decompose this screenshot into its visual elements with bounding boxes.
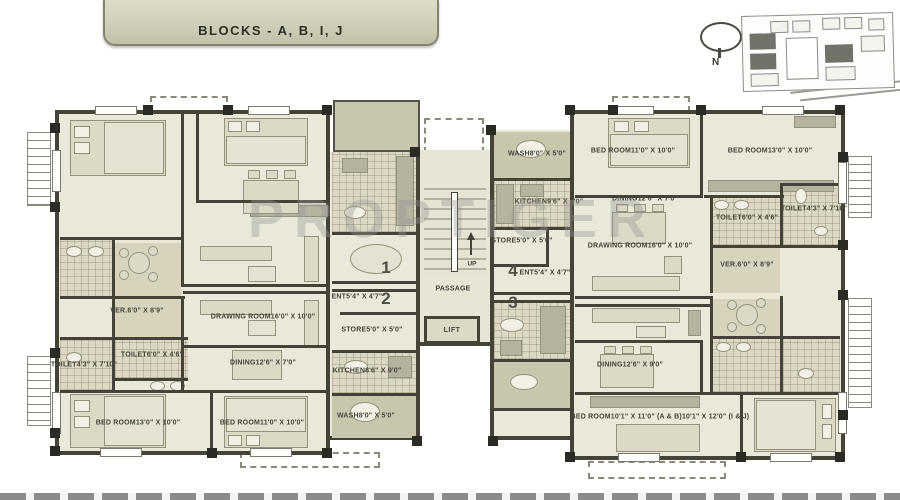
room-label-wash-left: WASH8'0" X 5'0": [337, 413, 395, 422]
site-block: [868, 18, 884, 30]
column: [322, 448, 332, 458]
furniture-pillow: [246, 121, 260, 132]
furniture-coffee-table: [248, 266, 276, 282]
wall: [416, 150, 420, 346]
wall: [332, 232, 420, 235]
room-label-dining-unit3: DINING12'6" X 9'0": [597, 362, 663, 371]
window: [100, 448, 142, 457]
furniture-pillow: [74, 142, 90, 154]
column: [412, 436, 422, 446]
toilet-fixture: [714, 200, 729, 210]
column: [696, 105, 706, 115]
room-label-toilet-left: TOILET6'0" X 4'6": [121, 352, 183, 361]
column: [838, 410, 848, 420]
room-label-toilet-right: TOILET6'0" X 4'6": [716, 215, 778, 224]
room-label-bedroom2-right: BED ROOM13'0" X 10'0": [728, 148, 813, 157]
column: [565, 452, 575, 462]
column: [835, 452, 845, 462]
stair-up-label: UP: [467, 261, 476, 268]
room-label-drawing-left: DRAWING ROOM16'0" X 10'0": [211, 314, 315, 323]
column: [838, 152, 848, 162]
wall: [700, 114, 703, 198]
column: [608, 105, 618, 115]
window: [95, 106, 137, 115]
furniture-pillow: [74, 416, 90, 428]
furniture-chair: [727, 322, 737, 332]
column: [50, 348, 60, 358]
wall: [183, 284, 330, 287]
room-label-wash-right: WASH8'0" X 5'0": [508, 151, 566, 160]
furniture-pillow: [614, 121, 629, 132]
wall: [183, 291, 330, 294]
site-plan-key: [741, 12, 895, 92]
wall: [783, 183, 840, 186]
toilet-fixture: [798, 368, 814, 379]
column: [50, 446, 60, 456]
furniture-chair: [284, 170, 296, 179]
site-open-court: [786, 37, 819, 80]
furniture-bed: [616, 424, 700, 452]
north-label: N: [712, 57, 719, 68]
column: [736, 452, 746, 462]
column: [410, 147, 420, 157]
wall: [704, 195, 784, 198]
kitchen-counter: [540, 306, 566, 354]
up-arrow-stem: [470, 240, 472, 255]
window: [618, 453, 660, 462]
toilet-floor: [783, 185, 840, 245]
floor-plan-page: BLOCKS - A, B, I, J N PROPTIGER: [0, 0, 900, 500]
kitchen-sink: [500, 318, 524, 332]
site-block: [751, 73, 779, 87]
unit-number-3: 3: [508, 293, 517, 313]
site-block: [825, 66, 855, 81]
furniture-dining-table: [243, 180, 299, 214]
wash-tub: [510, 374, 538, 390]
furniture-chair: [266, 170, 278, 179]
furniture-tv-unit: [688, 310, 701, 336]
room-label-bedroom1-right: BED ROOM11'0" X 10'0": [591, 148, 675, 157]
veranda-floor: [115, 299, 181, 339]
stair-stringer: [451, 192, 458, 272]
site-block: [822, 17, 840, 29]
wall: [546, 230, 549, 264]
unit-number-4: 4: [508, 261, 517, 281]
wall: [112, 240, 115, 298]
toilet-fixture: [66, 246, 82, 257]
site-block: [844, 17, 862, 29]
furniture-coffee-table: [248, 320, 276, 336]
wall: [780, 296, 783, 336]
site-block: [861, 35, 885, 52]
site-block: [770, 21, 788, 33]
furniture-rug: [350, 244, 402, 274]
wall: [494, 359, 570, 362]
furniture-chair: [727, 300, 737, 310]
room-label-drawing-right: DRAWING ROOM16'0" X 10'0": [588, 243, 692, 252]
wall: [575, 296, 713, 299]
column: [565, 105, 575, 115]
room-label-dining-left: DINING12'6" X 7'0": [230, 360, 296, 369]
wall: [60, 296, 185, 299]
room-label-ent-right: ENT5'4" X 4'7": [520, 270, 571, 279]
column: [838, 240, 848, 250]
veranda-floor: [712, 248, 780, 293]
column: [50, 428, 60, 438]
wall: [710, 339, 713, 392]
wall: [60, 390, 330, 393]
wall: [332, 350, 416, 353]
furniture-sofa: [304, 236, 319, 282]
room-label-veranda-left: VER.6'0" X 8'9": [110, 308, 163, 317]
furniture-pillow: [228, 435, 242, 446]
site-block: [792, 20, 810, 32]
column: [488, 436, 498, 446]
wall: [332, 289, 420, 292]
window: [770, 453, 812, 462]
wall: [494, 300, 570, 303]
wall: [332, 281, 420, 284]
toilet-fixture: [736, 342, 751, 352]
wall: [575, 340, 703, 343]
furniture-chair: [148, 272, 158, 282]
column: [143, 105, 153, 115]
furniture-pillow: [74, 400, 90, 412]
window: [762, 106, 804, 115]
furniture-chair: [634, 204, 646, 212]
furniture-chair: [148, 246, 158, 256]
furniture-pillow: [822, 424, 832, 439]
furniture-chair: [119, 270, 129, 280]
toilet-fixture: [795, 188, 807, 204]
room-label-bedroom1-left: BED ROOM13'0" X 10'0": [96, 420, 181, 429]
furniture-blanket: [226, 136, 306, 164]
column: [838, 290, 848, 300]
passage-label: PASSAGE: [435, 286, 470, 295]
furniture-pillow: [74, 126, 90, 138]
balcony-porch: [588, 461, 726, 479]
wall: [332, 393, 416, 396]
wall: [494, 292, 570, 295]
furniture-sofa: [304, 300, 319, 346]
furniture-sofa: [592, 276, 680, 291]
window: [248, 106, 290, 115]
wall: [196, 114, 199, 202]
window: [838, 162, 847, 204]
wall: [196, 200, 330, 203]
furniture-round-table: [736, 304, 758, 326]
room-label-dining-right: DINING12'6" X 7'0": [612, 196, 678, 205]
furniture-blanket: [104, 122, 164, 174]
furniture-chair: [622, 346, 634, 354]
wall: [700, 343, 703, 393]
wash-balcony: [333, 100, 420, 152]
wall: [494, 227, 570, 230]
window: [612, 106, 654, 115]
furniture-coffee-table: [636, 326, 666, 338]
wall: [494, 264, 549, 267]
room-label-kitchen-right: KITCHEN9'6" X 9'0": [515, 199, 584, 208]
wall: [710, 336, 840, 339]
furniture-armchair: [664, 256, 682, 274]
wall: [181, 296, 184, 390]
furniture-chair: [616, 204, 628, 212]
furniture-chair: [248, 170, 260, 179]
furniture-chair: [119, 248, 129, 258]
room-label-store-right: STORE5'0" X 5'0": [491, 238, 552, 247]
room-label-kitchen-left: KITCHEN8'6" X 9'0": [333, 368, 402, 377]
toilet-fixture: [716, 342, 731, 352]
column: [50, 123, 60, 133]
wall: [340, 312, 416, 315]
column: [50, 202, 60, 212]
furniture-dining-table: [612, 212, 666, 244]
kitchen-sink: [344, 206, 366, 219]
up-arrow-icon: [467, 232, 475, 240]
furniture-chair: [652, 204, 664, 212]
furniture-pillow: [634, 121, 649, 132]
kitchen-stove: [520, 184, 544, 197]
site-block-highlighted: [749, 33, 775, 50]
furniture-pillow: [822, 404, 832, 419]
unit-number-1: 1: [381, 258, 390, 278]
lift: LIFT: [424, 316, 480, 344]
lift-label: LIFT: [444, 327, 461, 334]
furniture-pillow: [246, 435, 260, 446]
unit-number-2: 2: [381, 289, 390, 309]
column: [835, 105, 845, 115]
toilet-fixture: [814, 226, 828, 236]
wall: [780, 339, 783, 392]
furniture-chair: [756, 324, 766, 334]
wall: [115, 378, 188, 381]
column: [207, 448, 217, 458]
furniture-sofa: [200, 246, 272, 261]
furniture-chair: [604, 346, 616, 354]
wall: [494, 178, 570, 181]
kitchen-stove: [500, 340, 522, 356]
balcony-railing: [27, 356, 51, 426]
furniture-pillow: [228, 121, 242, 132]
title-banner: BLOCKS - A, B, I, J: [103, 0, 439, 46]
site-block-highlighted: [750, 53, 776, 70]
north-compass-icon: [700, 22, 742, 52]
room-label-toilet2-right: TOILET4'3" X 7'10": [781, 206, 847, 215]
wall: [740, 392, 743, 456]
furniture-blanket: [756, 400, 816, 450]
bottom-edge-strip: [0, 493, 900, 500]
balcony-railing: [848, 298, 872, 408]
room-label-veranda-right: VER.6'0" X 8'9": [720, 262, 773, 271]
room-label-store-left: STORE5'0" X 5'0": [341, 327, 402, 336]
balcony-railing: [27, 132, 51, 206]
column: [486, 125, 496, 135]
furniture-sofa: [592, 308, 680, 323]
room-label-ent-left: ENT5'4" X 4'7": [332, 294, 383, 303]
furniture-round-table: [128, 252, 150, 274]
balcony-railing: [848, 156, 872, 218]
toilet-fixture: [88, 246, 104, 257]
wall: [210, 393, 213, 451]
furniture-chair: [756, 298, 766, 308]
wall: [183, 345, 330, 348]
room-label-bedroom-unit3: BED ROOM10'1" X 11'0" (A & B)10'1" X 12'…: [571, 414, 750, 423]
kitchen-counter: [496, 184, 514, 224]
window: [250, 448, 292, 457]
wall: [494, 408, 570, 411]
wall: [181, 114, 184, 287]
kitchen-counter: [396, 156, 414, 226]
site-block-highlighted: [825, 44, 853, 63]
wall: [575, 304, 713, 307]
room-label-toilet2-left: TOILET4'3" X 7'10": [51, 362, 117, 371]
furniture-wardrobe: [590, 396, 700, 408]
toilet-floor: [783, 339, 840, 392]
column: [322, 105, 332, 115]
furniture-wardrobe: [708, 180, 834, 192]
wall: [710, 296, 713, 336]
furniture-chair: [640, 346, 652, 354]
room-label-bedroom2-left: BED ROOM11'0" X 10'0": [220, 420, 304, 429]
furniture-wardrobe: [794, 116, 836, 128]
wall: [60, 337, 188, 340]
wall: [710, 245, 840, 248]
page-title: BLOCKS - A, B, I, J: [198, 23, 344, 44]
kitchen-stove: [342, 158, 368, 173]
wall: [575, 392, 740, 395]
toilet-fixture: [734, 200, 749, 210]
wall: [60, 237, 183, 240]
column: [223, 105, 233, 115]
furniture-dining-table: [600, 354, 654, 388]
window: [52, 150, 61, 192]
